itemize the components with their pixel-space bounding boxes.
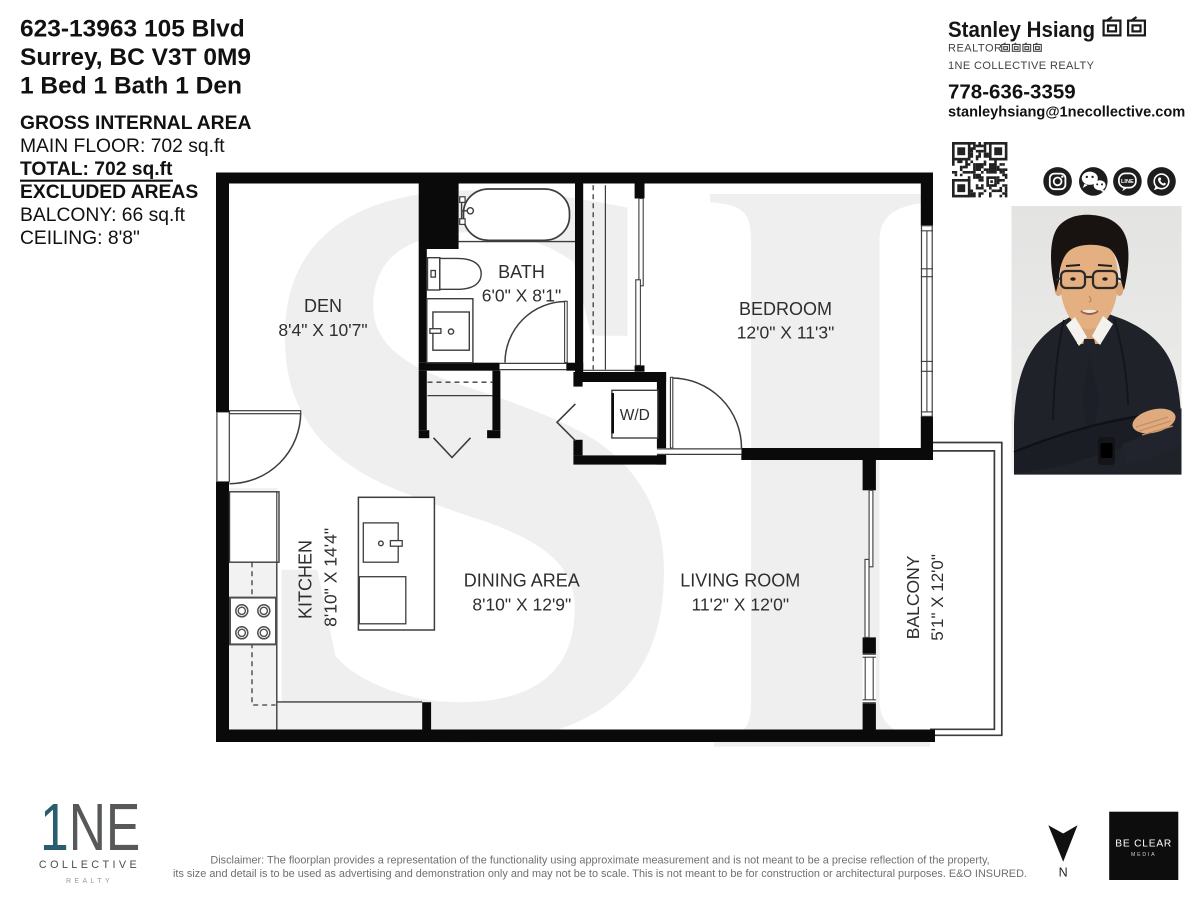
svg-text:EXCLUDED AREAS: EXCLUDED AREAS — [20, 182, 198, 203]
svg-text:1 Bed 1 Bath 1 Den: 1 Bed 1 Bath 1 Den — [20, 73, 242, 100]
svg-text:REALTY: REALTY — [66, 878, 113, 885]
svg-text:CEILING: 8'8": CEILING: 8'8" — [20, 228, 140, 249]
svg-text:its size and detail is to be u: its size and detail is to be used as adv… — [173, 868, 1027, 880]
svg-text:6'0" X 8'1": 6'0" X 8'1" — [482, 285, 561, 305]
svg-text:DEN: DEN — [304, 296, 342, 316]
svg-text:W/D: W/D — [620, 407, 650, 424]
svg-text:BATH: BATH — [498, 262, 545, 282]
svg-text:TOTAL: 702 sq.ft: TOTAL: 702 sq.ft — [20, 159, 173, 180]
svg-text:BE CLEAR: BE CLEAR — [1115, 839, 1172, 850]
svg-text:S: S — [237, 2, 699, 900]
svg-text:623-13963 105 Blvd: 623-13963 105 Blvd — [20, 16, 245, 43]
svg-text:BALCONY: 66 sq.ft: BALCONY: 66 sq.ft — [20, 205, 186, 226]
svg-text:MEDIA: MEDIA — [1131, 852, 1156, 858]
svg-text:5'1" X 12'0": 5'1" X 12'0" — [928, 554, 947, 641]
svg-text:LIVING ROOM: LIVING ROOM — [680, 571, 800, 591]
svg-text:778-636-3359: 778-636-3359 — [948, 81, 1076, 104]
svg-text:BEDROOM: BEDROOM — [739, 299, 832, 319]
svg-text:Stanley Hsiang: Stanley Hsiang — [948, 17, 1095, 42]
svg-text:Surrey, BC V3T 0M9: Surrey, BC V3T 0M9 — [20, 44, 251, 71]
svg-text:1NE COLLECTIVE REALTY: 1NE COLLECTIVE REALTY — [948, 60, 1095, 72]
svg-text:8'10" X 14'4": 8'10" X 14'4" — [320, 528, 340, 627]
svg-text:COLLECTIVE: COLLECTIVE — [39, 859, 140, 871]
svg-text:MAIN FLOOR: 702 sq.ft: MAIN FLOOR: 702 sq.ft — [20, 136, 225, 157]
svg-text:Disclaimer: The floorplan prov: Disclaimer: The floorplan provides a rep… — [210, 855, 989, 867]
svg-text:8'4" X 10'7": 8'4" X 10'7" — [278, 320, 367, 340]
svg-text:REALTOR: REALTOR — [948, 43, 1002, 55]
svg-text:LINE: LINE — [1121, 179, 1134, 185]
svg-text:8'10" X 12'9": 8'10" X 12'9" — [472, 595, 571, 615]
svg-text:DINING AREA: DINING AREA — [464, 571, 580, 591]
svg-text:11'2" X 12'0": 11'2" X 12'0" — [691, 595, 789, 615]
svg-text:1NE: 1NE — [40, 789, 140, 864]
svg-text:stanleyhsiang@1necollective.co: stanleyhsiang@1necollective.com — [948, 105, 1185, 121]
svg-text:BALCONY: BALCONY — [903, 555, 923, 639]
svg-text:N: N — [1059, 866, 1068, 880]
svg-text:GROSS INTERNAL AREA: GROSS INTERNAL AREA — [20, 113, 251, 134]
svg-text:12'0" X 11'3": 12'0" X 11'3" — [737, 323, 835, 343]
svg-text:KITCHEN: KITCHEN — [296, 540, 316, 619]
